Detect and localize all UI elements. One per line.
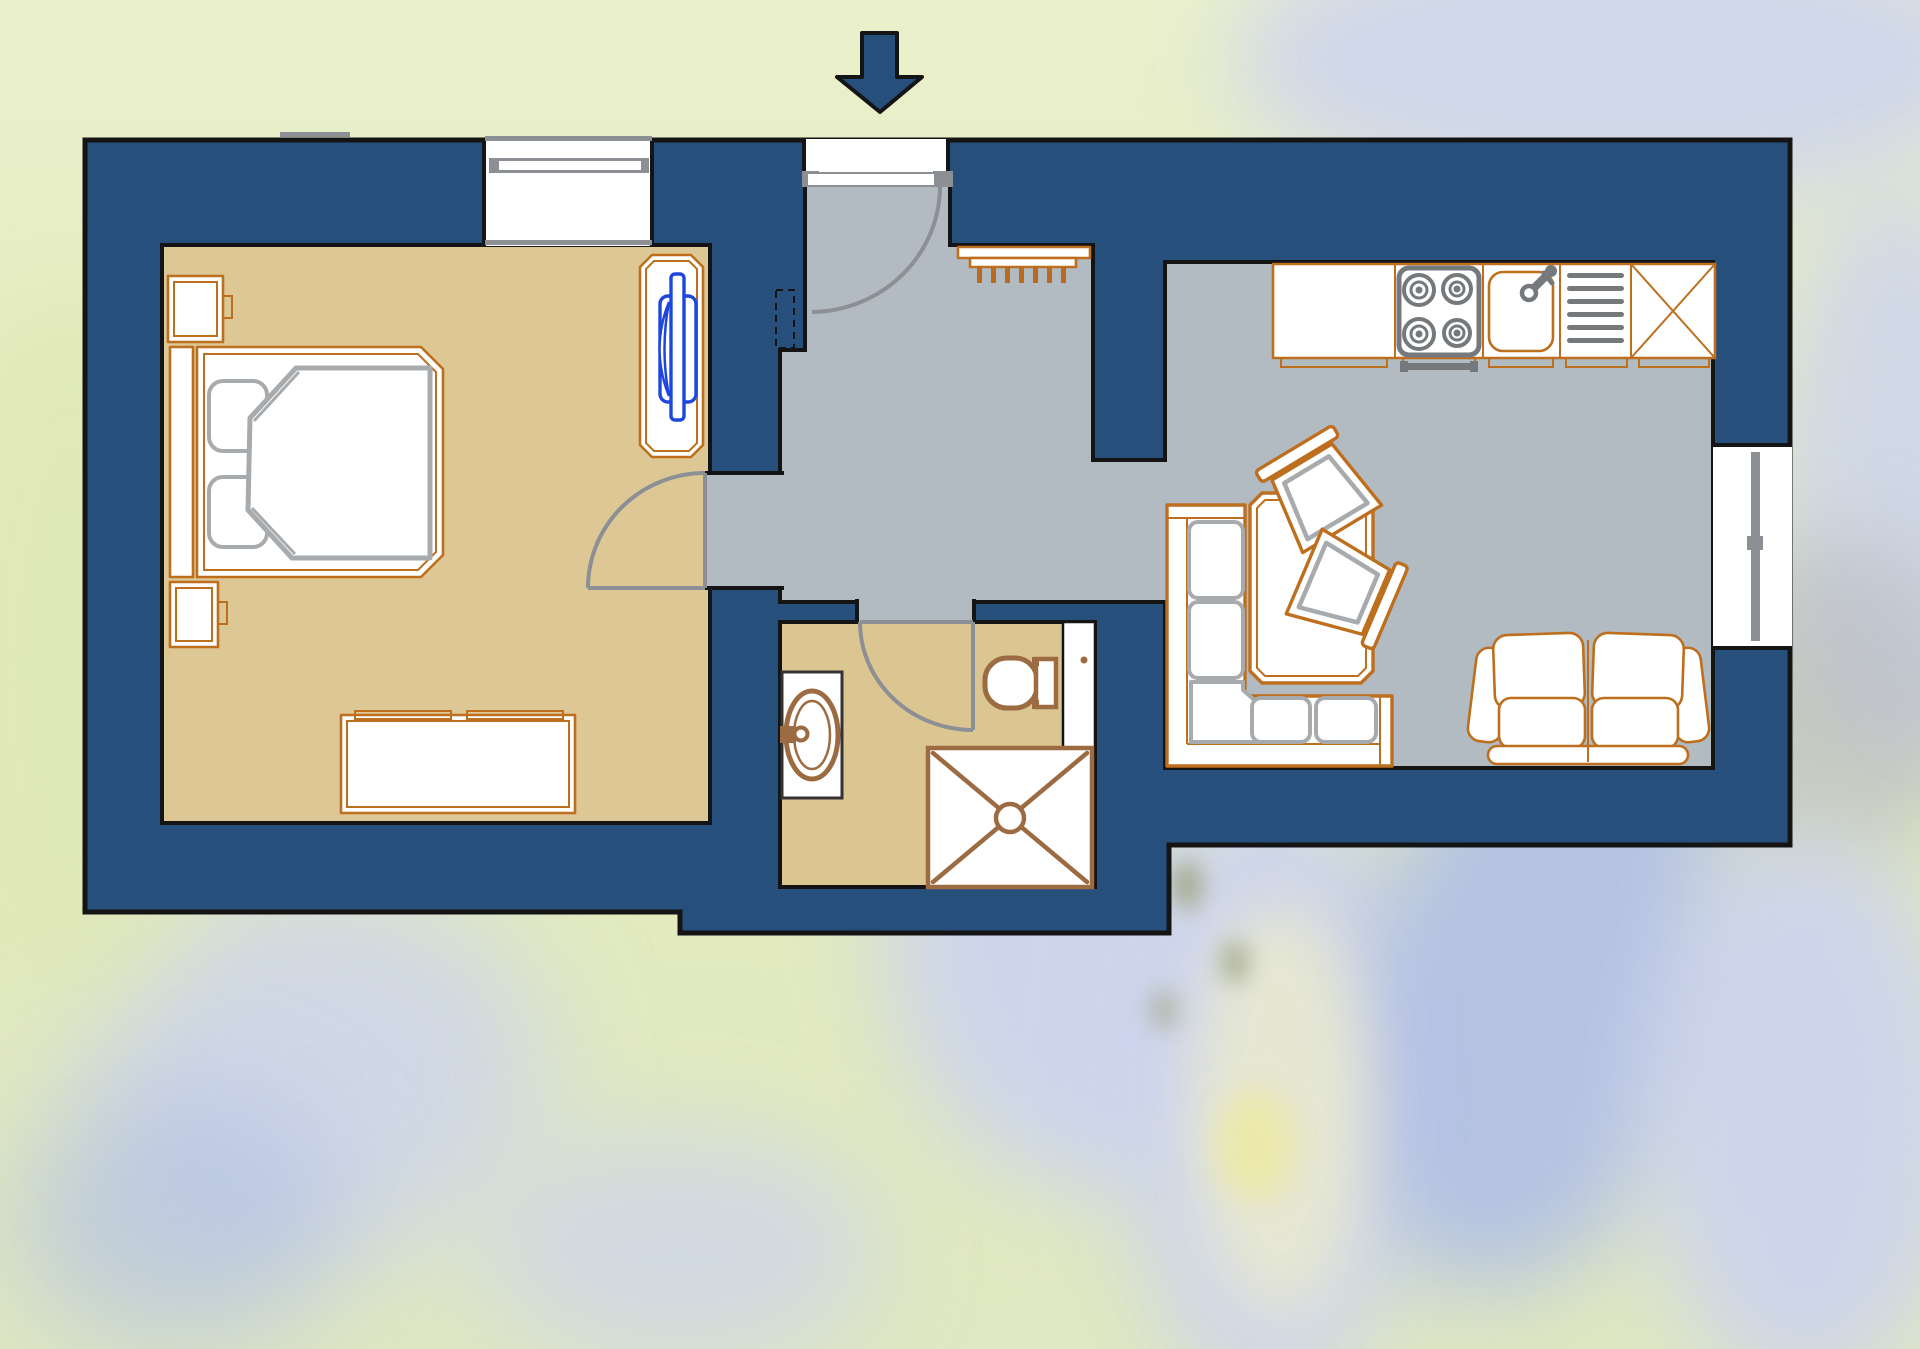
shower [928,748,1092,887]
nightstand-top [168,276,232,342]
toilet [985,657,1056,709]
bed [170,347,443,577]
loveseat [1466,632,1710,764]
screenshot-canvas [0,0,1920,1349]
kitchen-sink [1489,265,1557,351]
headboard-rail [170,347,193,577]
shelf-dot [1081,657,1088,664]
kitchen-counter [1273,264,1715,372]
shower-drain [996,804,1024,832]
stove [1399,268,1479,372]
dresser [341,711,575,813]
bedroom-window [482,136,654,246]
exterior-sill-line [280,132,350,137]
living-room-window [1713,443,1792,650]
nightstand-bottom [170,582,227,647]
oven-handle [1407,363,1471,370]
entrance-arrow-icon [837,33,922,112]
floor-plan [0,0,1920,1349]
entrance-door-leaf [807,173,935,186]
washbasin [780,672,842,798]
tv-table [640,255,703,457]
bathroom-shelf [1063,622,1095,748]
tv-blue-bar [671,274,684,420]
